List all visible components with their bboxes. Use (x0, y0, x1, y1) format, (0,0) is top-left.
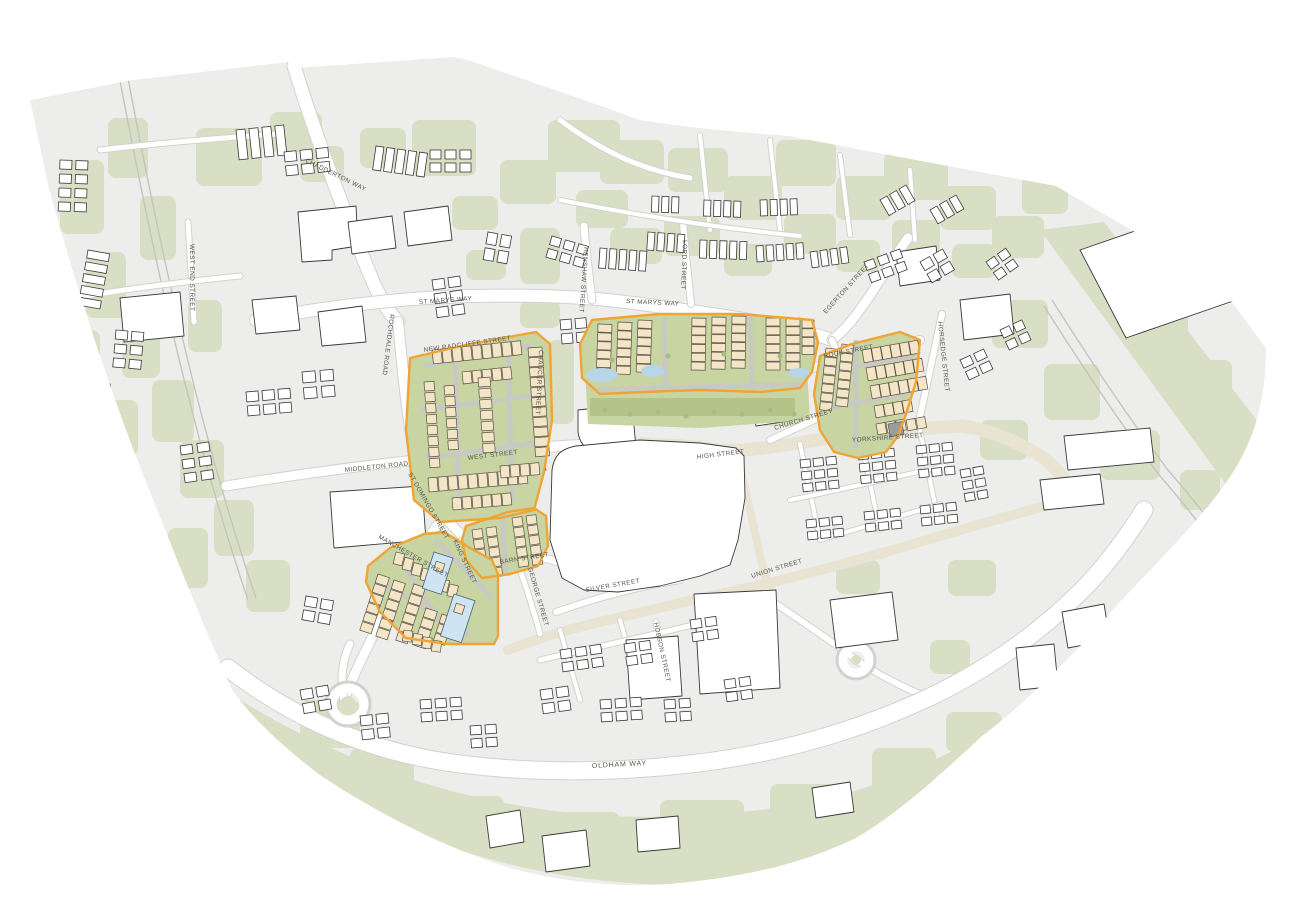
pond (641, 365, 665, 377)
street-label-west-end-street: WEST END STREET (188, 244, 195, 311)
site-new-radcliffe-street (406, 332, 552, 522)
map-layers (30, 57, 1272, 885)
pond (788, 368, 810, 378)
masterplan-svg: CHADDERTON WAY WEST END STREET ST MARYS … (0, 0, 1300, 918)
masterplan-map: CHADDERTON WAY WEST END STREET ST MARYS … (0, 0, 1300, 918)
pond (586, 368, 618, 382)
